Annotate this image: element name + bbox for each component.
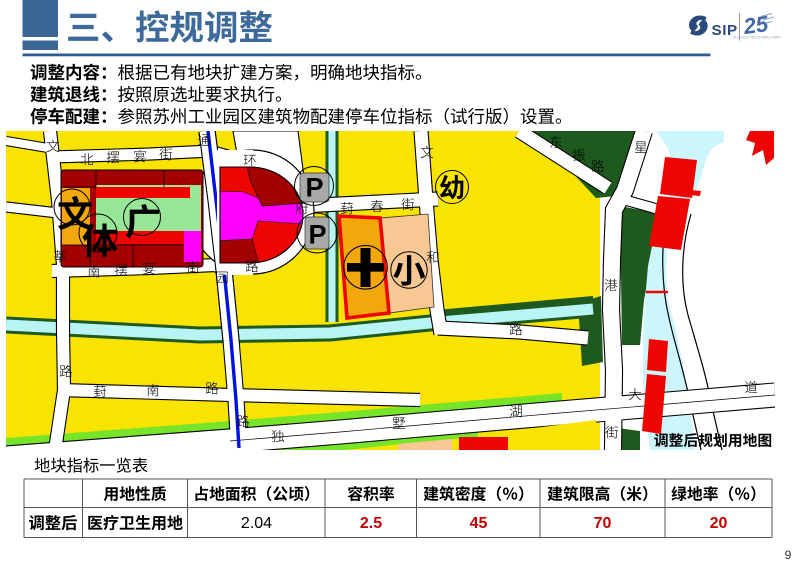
svg-text:P: P bbox=[305, 173, 323, 203]
svg-text:70: 70 bbox=[594, 515, 612, 532]
svg-text:2.5: 2.5 bbox=[360, 515, 382, 532]
svg-text:9: 9 bbox=[785, 548, 792, 562]
svg-text:SUZHOU INDUSTRIAL PARK: SUZHOU INDUSTRIAL PARK bbox=[733, 36, 782, 40]
svg-text:45: 45 bbox=[470, 515, 488, 532]
svg-text:2.04: 2.04 bbox=[241, 515, 272, 532]
svg-text:20: 20 bbox=[710, 515, 728, 532]
svg-text:P: P bbox=[308, 220, 326, 250]
